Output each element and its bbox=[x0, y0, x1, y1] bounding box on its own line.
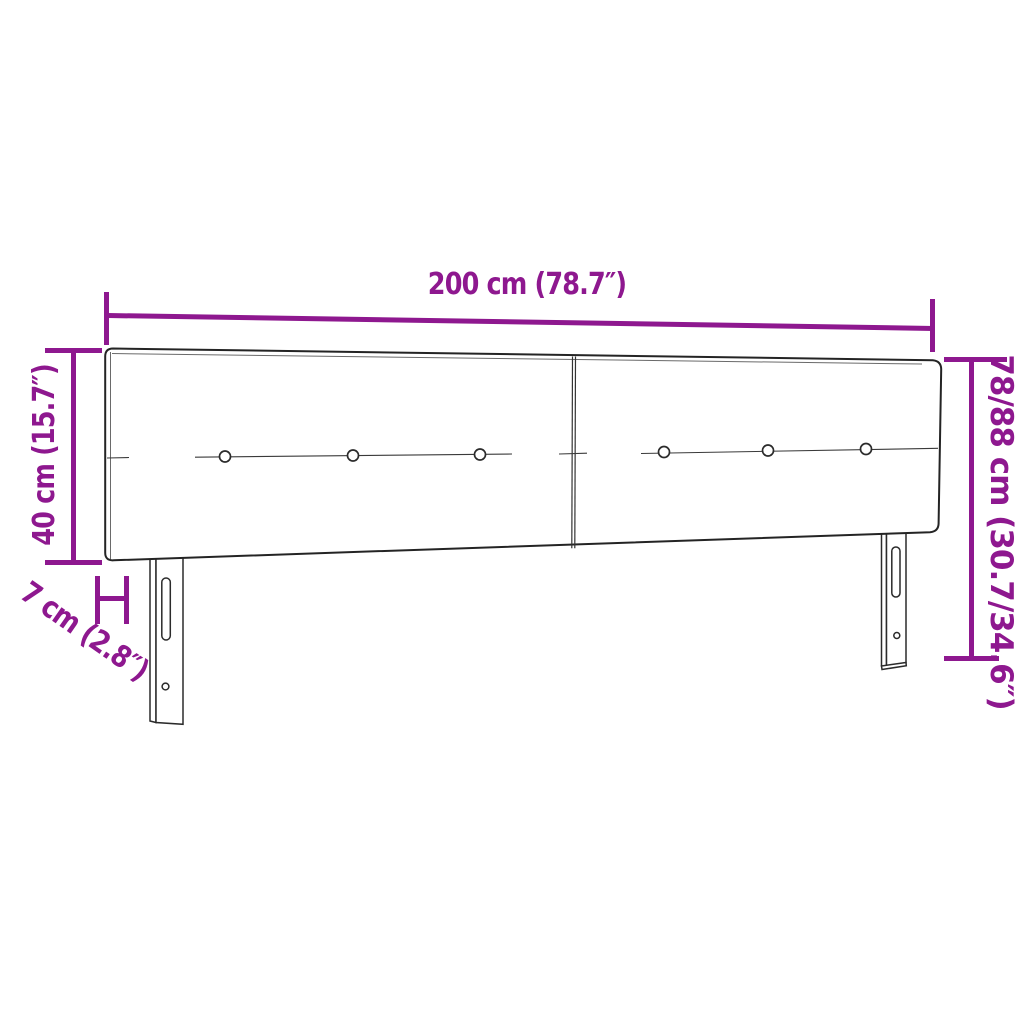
mounting-slot bbox=[892, 547, 900, 597]
tufting-button bbox=[763, 445, 774, 456]
tufting-button bbox=[659, 447, 670, 458]
width-dimension-tick-right bbox=[930, 299, 935, 352]
panel-height-dimension-line bbox=[71, 350, 76, 561]
right-leg bbox=[882, 528, 907, 670]
tufting-button bbox=[861, 444, 872, 455]
width-dimension-label: 200 cm (78.7″) bbox=[315, 263, 740, 307]
tufting-button bbox=[220, 451, 231, 462]
total-height-dimension-line bbox=[969, 361, 974, 659]
tufting-button bbox=[348, 450, 359, 461]
total-height-dimension-label: 78/88 cm (30.7/34.6″) bbox=[979, 282, 1023, 782]
width-dimension-tick-left bbox=[104, 292, 109, 345]
tufting-button bbox=[475, 449, 486, 460]
headboard-drawing bbox=[0, 0, 1024, 1024]
dimension-diagram: 200 cm (78.7″) 40 cm (15.7″) 7 cm (2.8″)… bbox=[0, 0, 1024, 1024]
depth-bracket-crossbar bbox=[95, 596, 129, 601]
screw-hole bbox=[894, 633, 900, 639]
mounting-slot bbox=[162, 578, 171, 640]
